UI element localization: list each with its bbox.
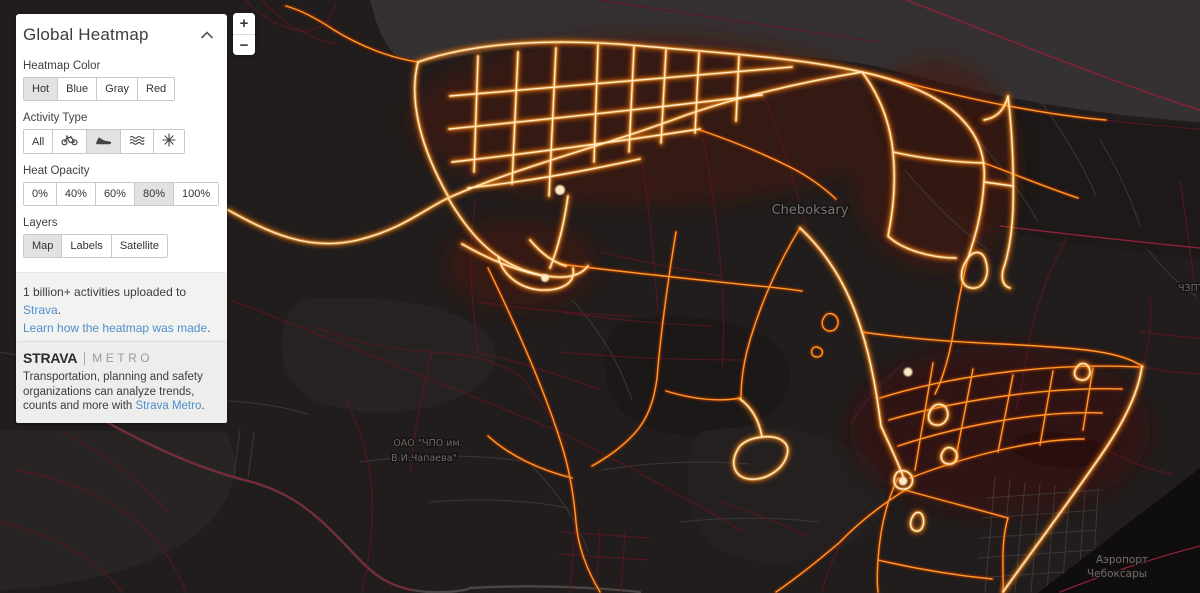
strava-heatmap-app: Cheboksary ОАО "ЧПО им. В.И.Чапаева" Аэр…: [0, 0, 1200, 593]
running-shoe-icon: [95, 134, 112, 149]
layers-label: Layers: [23, 217, 220, 229]
heatmap-color-group: Hot Blue Gray Red: [23, 77, 175, 101]
activity-ride-button[interactable]: [52, 130, 86, 153]
layer-labels-button[interactable]: Labels: [61, 235, 110, 257]
bicycle-icon: [61, 134, 78, 149]
strava-link[interactable]: Strava: [23, 303, 58, 317]
metro-header: STRAVA METRO: [23, 350, 220, 366]
city-label: Cheboksary: [772, 203, 849, 218]
color-red-button[interactable]: Red: [137, 78, 174, 100]
activity-run-button[interactable]: [86, 130, 120, 153]
strava-metro-card: STRAVA METRO Transportation, planning an…: [16, 342, 227, 423]
zoom-out-button[interactable]: −: [233, 34, 255, 55]
strava-metro-link[interactable]: Strava Metro: [136, 400, 202, 412]
factory-label-line2: В.И.Чапаева": [391, 453, 457, 464]
footer-text: 1 billion+ activities uploaded to: [23, 285, 186, 299]
color-hot-button[interactable]: Hot: [24, 78, 57, 100]
snowflake-icon: [162, 133, 176, 150]
layer-satellite-button[interactable]: Satellite: [111, 235, 167, 257]
opacity-100-button[interactable]: 100%: [173, 183, 218, 205]
heatmap-color-label: Heatmap Color: [23, 60, 220, 72]
heat-opacity-group: 0% 40% 60% 80% 100%: [23, 182, 219, 206]
activity-type-group: All: [23, 129, 185, 154]
heat-opacity-label: Heat Opacity: [23, 165, 220, 177]
layers-section: Layers Map Labels Satellite: [16, 217, 227, 258]
airport-label-line1: Аэропорт: [1096, 554, 1148, 566]
logo-divider: [84, 352, 85, 365]
factory-label-line1: ОАО "ЧПО им.: [393, 438, 462, 449]
opacity-40-button[interactable]: 40%: [56, 183, 95, 205]
activity-winter-button[interactable]: [153, 130, 184, 153]
color-blue-button[interactable]: Blue: [57, 78, 96, 100]
opacity-80-button[interactable]: 80%: [134, 183, 173, 205]
color-gray-button[interactable]: Gray: [96, 78, 137, 100]
zoom-in-button[interactable]: +: [233, 13, 255, 34]
heat-opacity-section: Heat Opacity 0% 40% 60% 80% 100%: [16, 165, 227, 206]
activity-water-button[interactable]: [120, 130, 153, 153]
heatmap-info-link[interactable]: Learn how the heatmap was made: [23, 321, 207, 335]
strava-wordmark: STRAVA: [23, 350, 77, 366]
activity-all-button[interactable]: All: [24, 130, 52, 153]
heatmap-color-section: Heatmap Color Hot Blue Gray Red: [16, 60, 227, 101]
panel-header: Global Heatmap: [16, 14, 227, 49]
metro-wordmark: METRO: [92, 351, 153, 365]
opacity-60-button[interactable]: 60%: [95, 183, 134, 205]
airport-label-line2: Чебоксары: [1087, 568, 1147, 580]
activity-type-label: Activity Type: [23, 112, 220, 124]
activity-type-section: Activity Type All: [16, 112, 227, 154]
collapse-chevron-up-icon[interactable]: [199, 29, 215, 41]
water-waves-icon: [129, 134, 145, 149]
layers-group: Map Labels Satellite: [23, 234, 168, 258]
panel-info-footer: 1 billion+ activities uploaded to Strava…: [16, 272, 227, 347]
opacity-0-button[interactable]: 0%: [24, 183, 56, 205]
metro-description: Transportation, planning and safety orga…: [23, 370, 220, 414]
heatmap-settings-panel: Global Heatmap Heatmap Color Hot Blue Gr…: [16, 14, 227, 347]
layer-map-button[interactable]: Map: [24, 235, 61, 257]
panel-title: Global Heatmap: [23, 25, 149, 45]
factory-right-label: ЧЗПТ: [1178, 283, 1200, 294]
map-zoom-control: + −: [233, 13, 255, 55]
